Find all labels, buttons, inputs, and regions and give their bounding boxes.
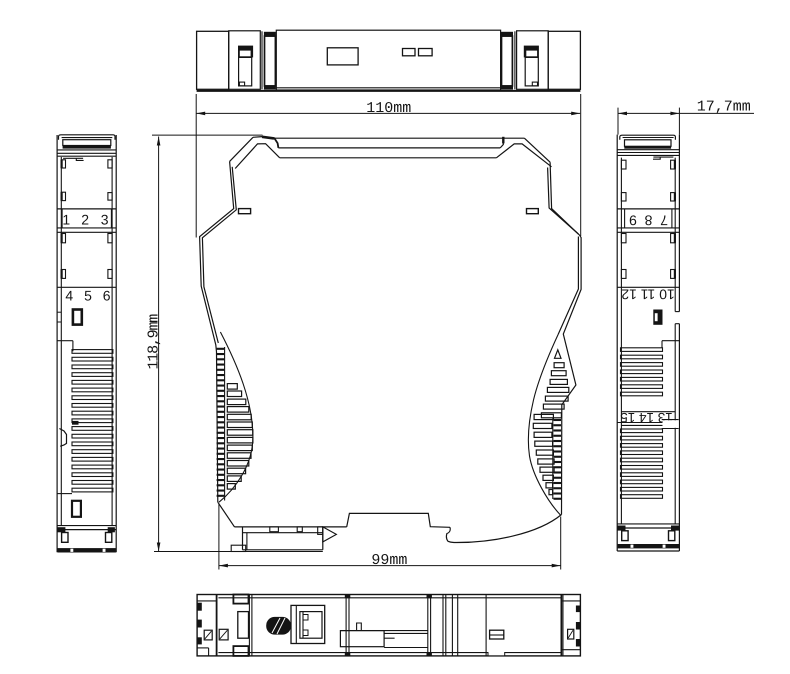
svg-text:17,7mm: 17,7mm: [697, 99, 751, 116]
svg-text:110mm: 110mm: [366, 100, 411, 117]
svg-text:99mm: 99mm: [371, 552, 407, 569]
svg-text:10 11 12: 10 11 12: [621, 287, 675, 303]
svg-text:4: 4: [65, 288, 73, 304]
svg-text:1: 1: [62, 211, 70, 227]
svg-text:2: 2: [81, 211, 89, 227]
svg-text:3: 3: [101, 211, 109, 227]
svg-text:5: 5: [84, 288, 92, 304]
svg-text:6: 6: [103, 288, 111, 304]
svg-text:118,9mm: 118,9mm: [145, 314, 162, 370]
svg-text:7 8 9: 7 8 9: [629, 213, 668, 229]
